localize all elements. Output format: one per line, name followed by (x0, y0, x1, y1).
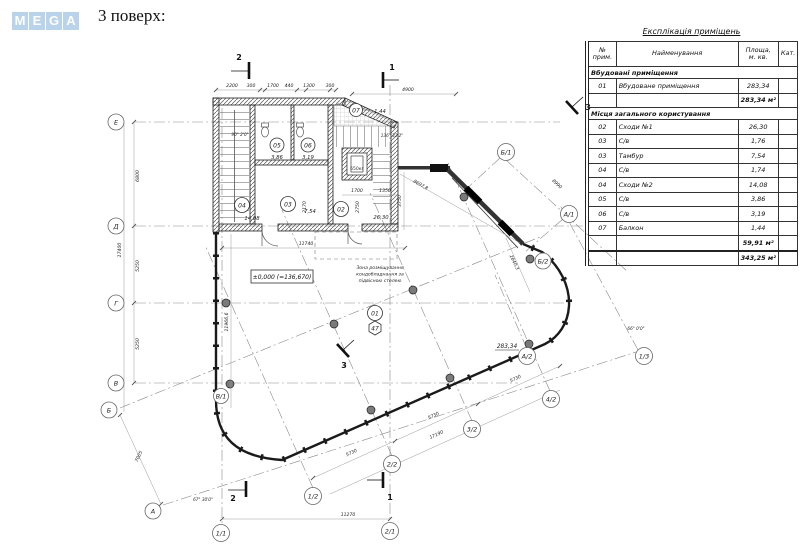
svg-text:4900: 4900 (402, 87, 414, 93)
svg-text:7,54: 7,54 (304, 209, 316, 215)
svg-text:Б/2: Б/2 (538, 258, 549, 266)
svg-text:А: А (150, 508, 155, 516)
svg-text:1/2: 1/2 (308, 493, 318, 501)
elevation-mark: ±0,000 (=136,670) (251, 270, 313, 283)
svg-text:5730: 5730 (427, 411, 440, 421)
table-row: 01 Вбудоване приміщення 283,34 (587, 79, 798, 94)
svg-text:3,19: 3,19 (302, 155, 314, 161)
svg-text:В/1: В/1 (216, 393, 227, 401)
svg-text:11740: 11740 (299, 241, 314, 247)
dimension-lines (120, 90, 560, 519)
table-row: 03 С/в 1,76 (587, 134, 798, 149)
svg-text:1: 1 (389, 63, 395, 72)
svg-text:47: 47 (371, 326, 379, 333)
svg-text:1/3: 1/3 (639, 353, 649, 361)
svg-text:440: 440 (285, 83, 294, 89)
svg-text:90° 2'0": 90° 2'0" (231, 132, 248, 137)
svg-text:1: 1 (387, 493, 393, 502)
svg-text:6800: 6800 (135, 170, 141, 182)
svg-text:2: 2 (236, 53, 242, 62)
svg-text:1700: 1700 (351, 188, 363, 194)
svg-text:2/1: 2/1 (385, 528, 395, 536)
svg-text:11966,6: 11966,6 (224, 312, 230, 331)
svg-text:2750: 2750 (355, 201, 361, 213)
table-row: 06 С/в 3,19 (587, 207, 798, 222)
section-row: Вбудовані приміщення (587, 67, 798, 79)
col-header-area: Площа,м. кв. (738, 42, 778, 67)
svg-text:кондобладнання за: кондобладнання за (356, 272, 404, 278)
svg-text:5730: 5730 (509, 374, 522, 384)
subtotal-row: 59,91 м² (587, 236, 798, 251)
svg-text:283,34: 283,34 (497, 344, 518, 350)
svg-text:А/2: А/2 (521, 353, 533, 361)
svg-text:04: 04 (238, 203, 246, 210)
svg-text:1350: 1350 (379, 188, 391, 194)
section-row: Місця загального користування (587, 108, 798, 120)
svg-text:1700: 1700 (267, 83, 279, 89)
svg-text:11270: 11270 (341, 512, 356, 518)
svg-text:підвісною стелею: підвісною стелею (359, 278, 402, 284)
wc-fixtures (262, 123, 304, 137)
svg-text:136° 32'2": 136° 32'2" (381, 133, 404, 138)
explication-table: Експлікація приміщень №прим. Найменуванн… (585, 27, 798, 266)
explication-title: Експлікація приміщень (585, 27, 798, 36)
svg-text:3: 3 (341, 361, 347, 370)
balcony-floor (334, 101, 396, 126)
table-row: 04 Сходи №2 14,08 (587, 178, 798, 193)
table-row: 04 С/в 1,74 (587, 163, 798, 178)
total-row: 343,25 м² (587, 251, 798, 266)
svg-text:03: 03 (284, 202, 292, 209)
svg-text:02: 02 (337, 207, 345, 214)
svg-text:Б: Б (107, 407, 112, 415)
svg-text:67° 30'0": 67° 30'0" (193, 497, 213, 502)
svg-text:3750: 3750 (397, 195, 403, 207)
svg-text:Б/1: Б/1 (501, 149, 512, 157)
dimension-ticks (118, 88, 562, 521)
svg-text:17400: 17400 (117, 243, 123, 258)
svg-text:4/2: 4/2 (546, 396, 556, 404)
svg-text:26,30: 26,30 (373, 215, 389, 221)
elevator-capacity-label: 650кг (350, 166, 364, 172)
svg-text:1300: 1300 (303, 83, 315, 89)
table-row: 07 Балкон 1,44 (587, 221, 798, 236)
hvac-zone-outline (315, 232, 397, 259)
svg-text:300: 300 (247, 83, 256, 89)
svg-text:2640,3: 2640,3 (508, 254, 520, 271)
svg-text:01: 01 (371, 311, 379, 318)
subtotal-row: 283,34 м² (587, 93, 798, 108)
total-area-label: 283,34 (495, 344, 519, 350)
svg-text:66° 0'0": 66° 0'0" (627, 326, 644, 331)
svg-text:В: В (114, 380, 119, 388)
col-header-name: Найменування (616, 42, 738, 67)
wing-walls (398, 164, 523, 248)
svg-text:05: 05 (273, 143, 281, 150)
svg-text:5250: 5250 (135, 338, 141, 350)
table-row: 02 Сходи №1 26,30 (587, 120, 798, 135)
table-row: 03 Тамбур 7,54 (587, 149, 798, 164)
svg-text:14,08: 14,08 (244, 216, 260, 222)
svg-text:А/1: А/1 (563, 211, 575, 219)
hvac-zone-note: Зона розміщування кондобладнання за підв… (356, 265, 404, 284)
svg-text:8990: 8990 (550, 178, 563, 190)
svg-text:1/1: 1/1 (216, 530, 226, 538)
svg-text:5250: 5250 (135, 260, 141, 272)
svg-text:Зона розміщування: Зона розміщування (356, 265, 404, 271)
svg-text:1,44: 1,44 (374, 109, 386, 115)
svg-text:Д: Д (112, 223, 118, 231)
col-header-cat: Кат. (778, 42, 797, 67)
svg-text:3/2: 3/2 (467, 426, 477, 434)
svg-text:2: 2 (230, 494, 236, 503)
svg-text:17190: 17190 (429, 429, 445, 441)
svg-text:7005: 7005 (134, 450, 144, 463)
svg-text:3,86: 3,86 (271, 155, 283, 161)
svg-text:2/2: 2/2 (387, 461, 397, 469)
col-header-num: №прим. (587, 42, 616, 67)
svg-text:2200: 2200 (226, 83, 238, 89)
svg-text:±0,000 (=136,670): ±0,000 (=136,670) (253, 274, 312, 281)
dimension-labels: 2200 300 1700 440 1300 300 4900 11740 11… (117, 83, 563, 518)
table-row: 05 С/в 3,86 (587, 192, 798, 207)
svg-text:07: 07 (352, 108, 360, 115)
svg-text:06: 06 (304, 143, 312, 150)
svg-text:300: 300 (326, 83, 335, 89)
svg-text:5730: 5730 (345, 448, 358, 458)
elevator-shaft (342, 148, 372, 180)
svg-text:8697,8: 8697,8 (412, 179, 429, 192)
table-header-row: №прим. Найменування Площа,м. кв. Кат. (587, 42, 798, 67)
